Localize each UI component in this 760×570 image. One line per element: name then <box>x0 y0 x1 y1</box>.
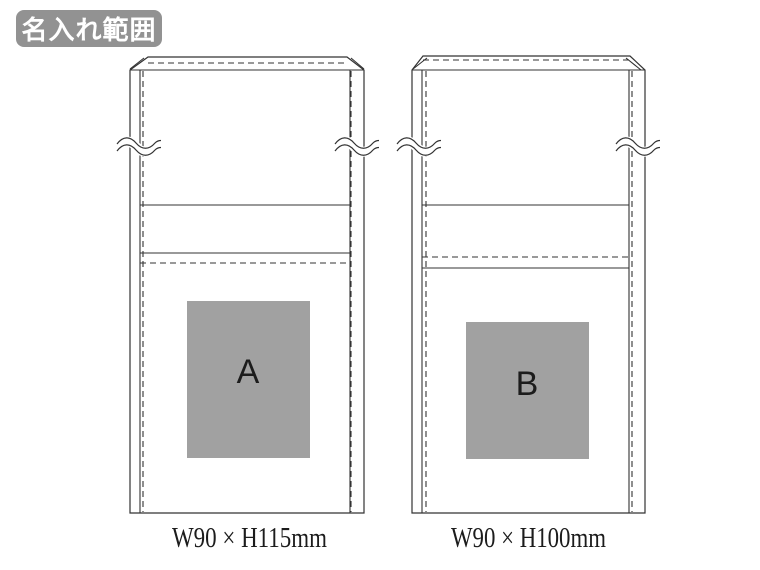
bag-b-print-area-label: B <box>516 365 539 403</box>
bag-b-size-caption: W90 × H100mm <box>451 523 606 554</box>
bag-a-diagram: A W90 × H115mm <box>117 57 379 554</box>
bag-b-diagram: B W90 × H100mm <box>397 56 660 554</box>
bag-diagrams-canvas: A W90 × H115mm B W90 × H100mm <box>0 0 760 570</box>
bag-a-print-area-label: A <box>237 353 260 391</box>
bag-a-size-caption: W90 × H115mm <box>172 523 327 554</box>
